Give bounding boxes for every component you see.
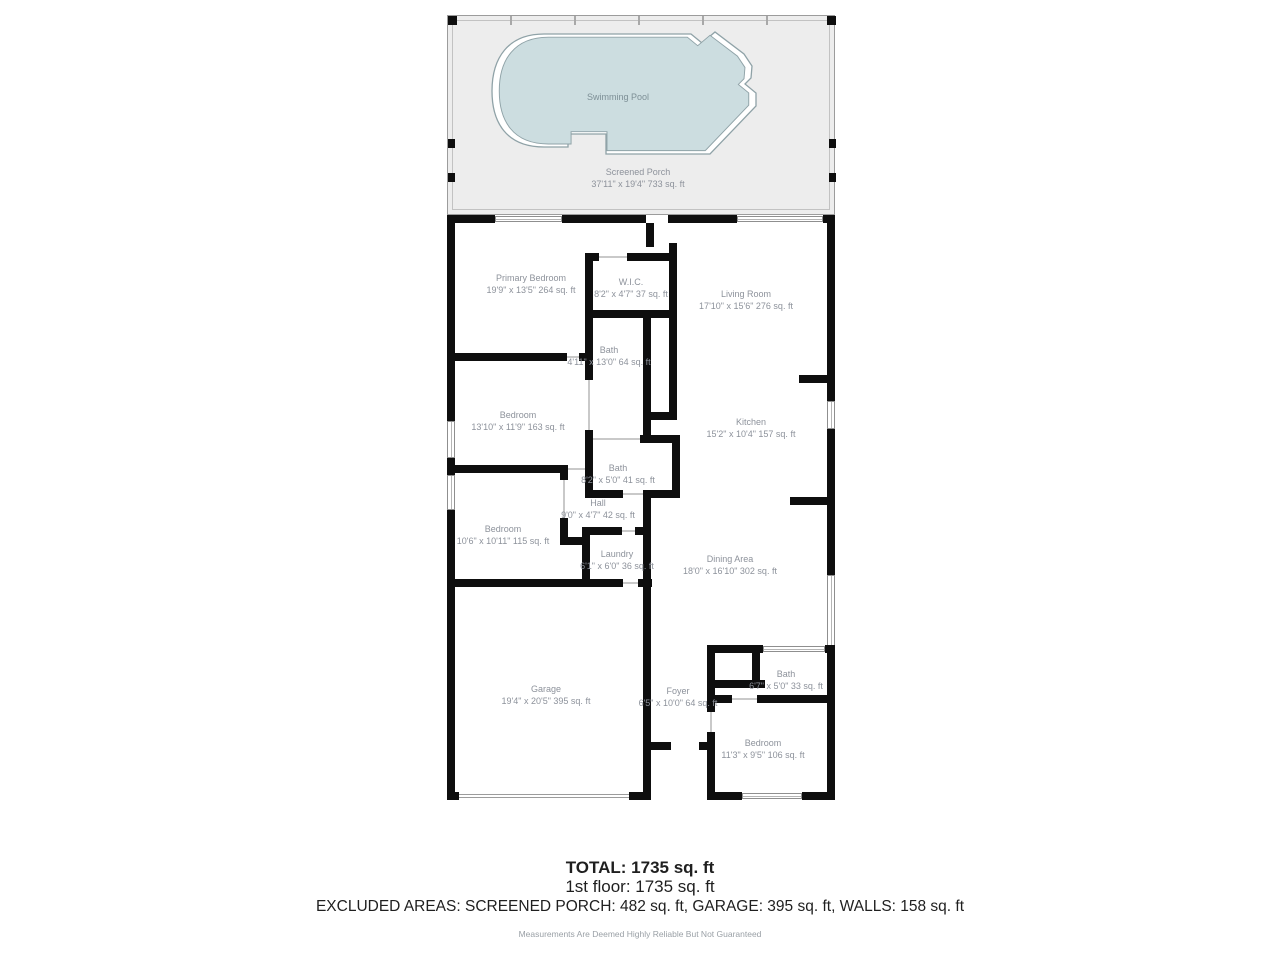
- room-dims: 19'9" x 13'5" 264 sq. ft: [487, 285, 576, 295]
- wall: [757, 695, 835, 703]
- room-name: Primary Bedroom: [496, 273, 566, 283]
- room-label-swimming-pool: Swimming Pool: [587, 92, 649, 104]
- wall: [447, 579, 623, 587]
- room-name: Laundry: [601, 549, 634, 559]
- wall: [585, 310, 677, 318]
- wall: [707, 732, 715, 792]
- wall: [799, 375, 835, 383]
- wall: [643, 490, 675, 498]
- excluded-areas: EXCLUDED AREAS: SCREENED PORCH: 482 sq. …: [0, 896, 1280, 918]
- room-label-bedroom-106: Bedroom 11'3" x 9'5" 106 sq. ft: [721, 738, 804, 761]
- wall: [672, 435, 680, 498]
- wall: [802, 792, 835, 800]
- room-dims: 11'3" x 9'5" 106 sq. ft: [721, 750, 804, 760]
- wall: [825, 645, 835, 653]
- wall: [585, 253, 599, 261]
- room-dims: 8'2" x 5'0" 41 sq. ft: [581, 475, 655, 485]
- room-label-bedroom-115: Bedroom 10'6" x 10'11" 115 sq. ft: [457, 524, 550, 547]
- room-name: Bath: [600, 345, 619, 355]
- window: [495, 216, 562, 222]
- window: [737, 216, 823, 222]
- room-dims: 8'2" x 4'7" 37 sq. ft: [594, 289, 668, 299]
- room-name: Swimming Pool: [587, 92, 649, 102]
- wall: [447, 353, 567, 361]
- wall: [562, 215, 646, 223]
- door-opening: [593, 438, 640, 440]
- room-dims: 4'11" x 13'0" 64 sq. ft: [567, 357, 650, 367]
- wall: [447, 465, 560, 473]
- wall: [585, 490, 623, 498]
- total-area: TOTAL: 1735 sq. ft: [0, 858, 1280, 877]
- room-name: Bath: [609, 463, 628, 473]
- room-dims: 17'10" x 15'6" 276 sq. ft: [699, 301, 793, 311]
- room-name: Kitchen: [736, 417, 766, 427]
- wall: [447, 792, 459, 800]
- door-opening: [588, 380, 590, 430]
- room-label-living-room: Living Room 17'10" x 15'6" 276 sq. ft: [699, 289, 793, 312]
- room-label-bath-33: Bath 6'7" x 5'0" 33 sq. ft: [749, 669, 823, 692]
- room-dims: 37'11" x 19'4" 733 sq. ft: [591, 179, 684, 189]
- area-summary: TOTAL: 1735 sq. ft 1st floor: 1735 sq. f…: [0, 858, 1280, 939]
- wall: [643, 490, 651, 800]
- room-label-primary-bedroom: Primary Bedroom 19'9" x 13'5" 264 sq. ft: [487, 273, 576, 296]
- room-dims: 13'10" x 11'9" 163 sq. ft: [471, 422, 564, 432]
- wall: [651, 742, 671, 750]
- room-dims: 15'2" x 10'4" 157 sq. ft: [707, 429, 796, 439]
- wall: [582, 527, 622, 535]
- wall: [827, 215, 835, 800]
- window: [827, 575, 835, 651]
- room-name: Hall: [590, 498, 606, 508]
- room-dims: 6'1" x 6'0" 36 sq. ft: [580, 561, 654, 571]
- room-label-wic: W.I.C. 8'2" x 4'7" 37 sq. ft: [594, 277, 668, 300]
- window: [763, 646, 825, 652]
- floor-plan-page: Swimming Pool Screened Porch 37'11" x 19…: [0, 0, 1280, 960]
- room-label-kitchen: Kitchen 15'2" x 10'4" 157 sq. ft: [707, 417, 796, 440]
- room-label-dining-area: Dining Area 18'0" x 16'10" 302 sq. ft: [683, 554, 777, 577]
- door-opening: [622, 530, 635, 532]
- room-label-screened-porch: Screened Porch 37'11" x 19'4" 733 sq. ft: [591, 167, 684, 190]
- room-label-laundry: Laundry 6'1" x 6'0" 36 sq. ft: [580, 549, 654, 572]
- room-name: Bedroom: [745, 738, 782, 748]
- screened-porch: Swimming Pool Screened Porch 37'11" x 19…: [447, 15, 835, 215]
- room-label-bath-41: Bath 8'2" x 5'0" 41 sq. ft: [581, 463, 655, 486]
- room-dims: 6'5" x 10'0" 64 sq. ft: [639, 698, 718, 708]
- first-floor-area: 1st floor: 1735 sq. ft: [0, 877, 1280, 896]
- room-name: Dining Area: [707, 554, 754, 564]
- room-dims: 9'0" x 4'7" 42 sq. ft: [561, 510, 635, 520]
- room-name: Bedroom: [485, 524, 522, 534]
- wall: [585, 253, 593, 318]
- door-opening: [623, 582, 638, 584]
- room-name: Screened Porch: [606, 167, 671, 177]
- wall: [668, 215, 737, 223]
- room-name: Living Room: [721, 289, 771, 299]
- room-name: W.I.C.: [619, 277, 644, 287]
- window: [742, 793, 802, 799]
- room-dims: 6'7" x 5'0" 33 sq. ft: [749, 681, 823, 691]
- door-opening: [732, 698, 757, 700]
- wall: [643, 318, 651, 443]
- room-dims: 18'0" x 16'10" 302 sq. ft: [683, 566, 777, 576]
- room-label-bath-64: Bath 4'11" x 13'0" 64 sq. ft: [567, 345, 650, 368]
- wall: [646, 223, 654, 247]
- door-opening: [710, 712, 712, 732]
- room-dims: 10'6" x 10'11" 115 sq. ft: [457, 536, 550, 546]
- room-label-bedroom-163: Bedroom 13'10" x 11'9" 163 sq. ft: [471, 410, 564, 433]
- room-dims: 19'4" x 20'5" 395 sq. ft: [502, 696, 591, 706]
- main-floor: Primary Bedroom 19'9" x 13'5" 264 sq. ft…: [447, 215, 835, 800]
- room-name: Bedroom: [500, 410, 537, 420]
- wall: [643, 412, 677, 420]
- disclaimer: Measurements Are Deemed Highly Reliable …: [0, 929, 1280, 939]
- wall: [560, 465, 568, 480]
- window: [827, 401, 835, 429]
- wall: [669, 243, 677, 412]
- wall: [790, 497, 835, 505]
- garage-door: [459, 794, 629, 798]
- room-name: Garage: [531, 684, 561, 694]
- room-label-foyer: Foyer 6'5" x 10'0" 64 sq. ft: [639, 686, 718, 709]
- door-opening: [599, 256, 627, 258]
- wall: [707, 792, 742, 800]
- window: [447, 475, 455, 510]
- room-label-garage: Garage 19'4" x 20'5" 395 sq. ft: [502, 684, 591, 707]
- window: [447, 421, 455, 458]
- room-label-hall: Hall 9'0" x 4'7" 42 sq. ft: [561, 498, 635, 521]
- room-name: Foyer: [666, 686, 689, 696]
- room-name: Bath: [777, 669, 796, 679]
